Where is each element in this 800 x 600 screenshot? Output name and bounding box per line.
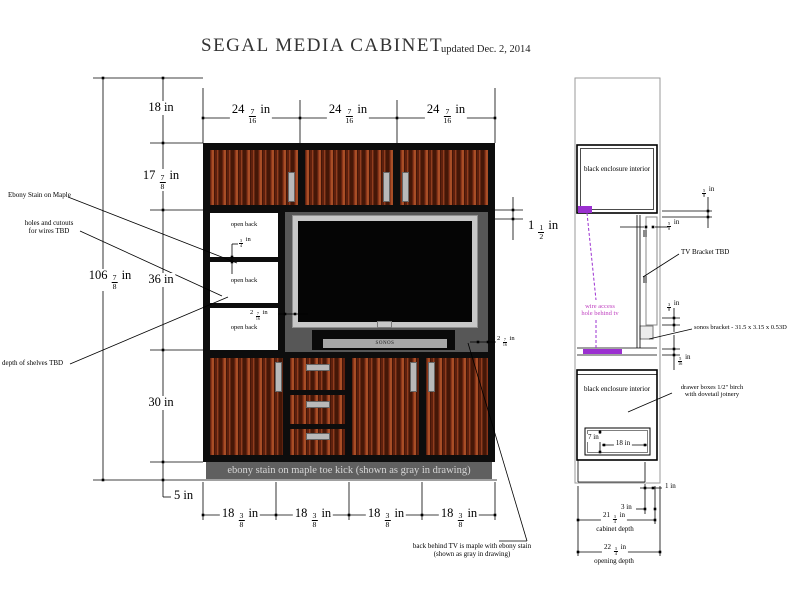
dim-top-1: 24 716 in (230, 103, 272, 125)
side-label-cabinet-depth: cabinet depth (596, 526, 634, 534)
dim-tv-gap-right: 2 716 in (497, 335, 515, 347)
side-dim-opening-depth: 22 34 in (602, 544, 628, 557)
updated-date: updated Dec. 2, 2014 (441, 44, 531, 56)
open-back-label-3: open back (231, 324, 258, 331)
dim-tv-gap-left: 2 716 in (250, 309, 268, 321)
annotation-line: drawer boxes 1/2" birch (681, 384, 743, 391)
side-dim-cabinet-depth: 21 34 in (601, 512, 627, 525)
annotation-line: (shown as gray in drawing) (413, 551, 531, 559)
dim-height-36: 36 in (146, 273, 175, 287)
drawing-canvas: SONOS ebony stain on maple toe kick (sho… (0, 0, 800, 600)
annotation-line: hole behind tv (577, 310, 623, 317)
dim-shelf-3-4: 34 in (238, 236, 251, 248)
annotation-shelf-depth: depth of shelves TBD (2, 360, 63, 368)
annotation-line: wire access (577, 303, 623, 310)
side-dim-drawer-depth: 18 in (614, 440, 632, 448)
dim-top-3: 24 716 in (425, 103, 467, 125)
side-dim-top-gap: 58 in (701, 186, 714, 199)
dim-height-18: 18 in (146, 101, 175, 115)
side-dim-drawer-height: 7 in (586, 434, 601, 442)
annotation-drawer-boxes: drawer boxes 1/2" birch with dovetail jo… (681, 384, 743, 398)
side-dim-back-gap: 58 in (666, 219, 679, 232)
annotation-line: with dovetail joinery (681, 391, 743, 398)
drawing-title: SEGAL MEDIA CABINET (201, 36, 443, 57)
annotation-wire-access: wire access hole behind tv (577, 303, 623, 317)
annotation-ebony-stain: Ebony Stain on Maple (8, 192, 71, 200)
side-lower-box-label: black enclosure interior (579, 386, 655, 394)
dim-overall-height: 106 78 in (87, 269, 134, 291)
annotation-line: for wires TBD (25, 228, 74, 236)
dim-top-2: 24 716 in (327, 103, 369, 125)
side-upper-box-label: black enclosure interior (579, 166, 655, 174)
side-dim-below-bracket: 516 in (677, 354, 691, 367)
open-back-label-1: open back (231, 221, 258, 228)
dim-height-30: 30 in (146, 396, 175, 410)
dim-bottom-3: 18 38 in (366, 507, 406, 529)
annotation-back-behind-tv: back behind TV is maple with ebony stain… (413, 543, 531, 558)
annotation-holes-cutouts: holes and cutouts for wires TBD (25, 220, 74, 235)
annotation-sonos-bracket: sonos bracket - 31.5 x 3.15 x 0.53D (694, 324, 787, 331)
dim-gap-1-1-2: 1 12 in (528, 219, 558, 241)
dim-height-5: 5 in (174, 489, 193, 503)
side-dim-above-bracket: 38 in (666, 300, 679, 313)
dim-bottom-2: 18 38 in (293, 507, 333, 529)
annotation-tv-bracket: TV Bracket TBD (681, 249, 729, 257)
open-back-label-2: open back (231, 277, 258, 284)
dim-bottom-4: 18 38 in (439, 507, 479, 529)
dim-bottom-1: 18 38 in (220, 507, 260, 529)
dim-height-17-7-8: 17 78 in (141, 169, 181, 191)
side-label-opening-depth: opening depth (594, 558, 634, 566)
side-dim-toe-recess: 1 in (665, 483, 676, 491)
